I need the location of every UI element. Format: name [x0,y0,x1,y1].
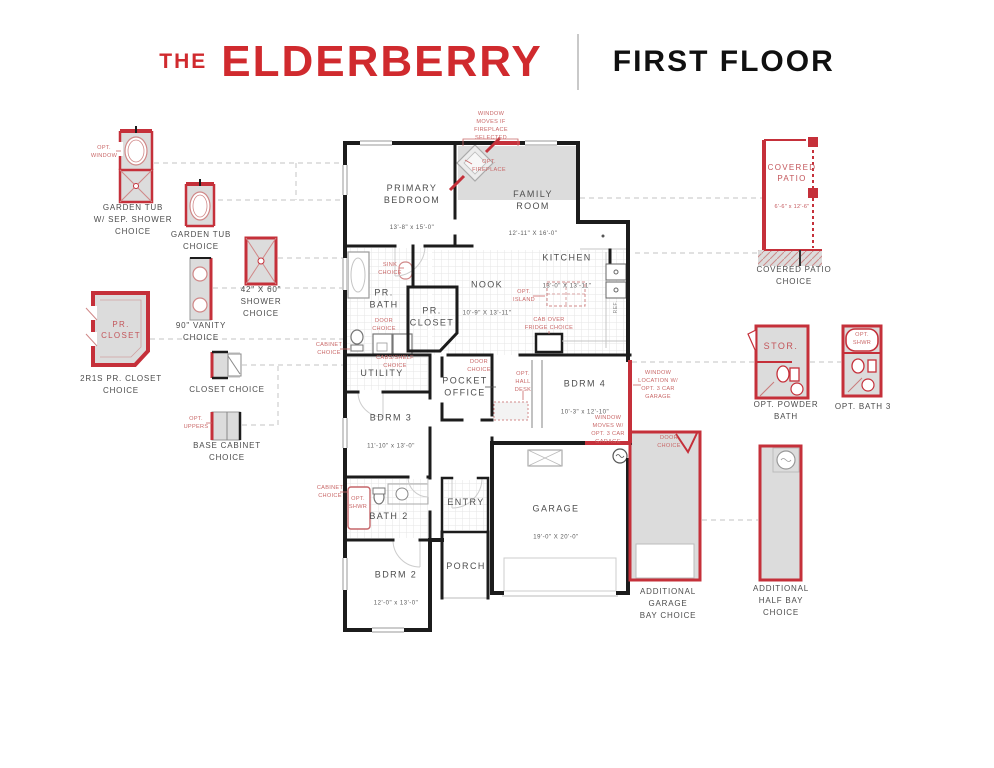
room-label-bdrm3: BDRM 3 11'-10" x 13'-0" [367,395,415,468]
room-label-bdrm2: BDRM 2 12'-0" x 13'-0" [374,552,418,625]
option-garden-tub: GARDEN TUB CHOICE [171,229,231,253]
room-label-bath2: BATH 2 [369,493,408,541]
room-label-porch: PORCH [446,543,486,591]
option-2r1s-pr-closet: 2R1S PR. CLOSET CHOICE [80,373,162,397]
note-door-choice-bath: DOOR CHOICE [372,317,396,333]
note-door-choice-office: DOOR CHOICE [467,358,491,374]
note-cab-over-fridge: CAB OVER FRIDGE CHOICE [525,316,573,332]
room-label-entry: ENTRY [447,479,484,527]
room-label-pr-closet: PR. CLOSET [410,287,454,346]
note-opt-shwr-bath3: OPT. SHWR [853,331,871,347]
note-opt-window: OPT. WINDOW [91,144,117,160]
option-additional-half-bay: ADDITIONAL HALF BAY CHOICE [753,583,809,619]
note-opt-uppers: OPT. UPPERS [184,415,209,431]
note-cabinet-choice-bath2: CABINET CHOICE [317,484,343,500]
stor-inner-label: STOR. [764,341,799,351]
floorplan-page: THE ELDERBERRY FIRST FLOOR [0,0,994,768]
room-dim: 13'-8" x 15'-0" [384,225,440,231]
note-window-moves-fireplace: WINDOW MOVES IF FIREPLACE SELECTED [474,110,508,142]
note-opt-fireplace: OPT. FIREPLACE [472,158,506,174]
option-base-cabinet: BASE CABINET CHOICE [193,440,261,464]
room-label-garage: GARAGE 19'-0" X 20'-0" [533,486,580,559]
room-name: PRIMARY BEDROOM [384,183,440,206]
note-cabinet-choice-utility: CABINET CHOICE [316,341,342,357]
pr-closet-option-inner-label: PR. CLOSET [101,319,141,341]
note-opt-island: OPT. ISLAND [513,288,535,304]
option-powder-bath: OPT. POWDER BATH [754,399,819,423]
room-label-primary-bedroom: PRIMARY BEDROOM 13'-8" x 15'-0" [384,165,440,249]
note-window-moves-garage: WINDOW MOVES W/ OPT. 3 CAR GARAGE [591,414,624,446]
room-label-kitchen: KITCHEN 13'-0" X 13'-11" [542,235,591,308]
option-closet: CLOSET CHOICE [189,384,265,396]
option-vanity-90: 90" VANITY CHOICE [176,320,226,344]
option-bath3: OPT. BATH 3 [835,401,891,413]
covered-patio-inner-label: COVERED PATIO 6'-6" x 12'-6" [768,144,817,228]
option-covered-patio: COVERED PATIO CHOICE [756,264,831,288]
option-additional-garage-bay: ADDITIONAL GARAGE BAY CHOICE [640,586,697,622]
note-window-location-garage: WINDOW LOCATION W/ OPT. 3 CAR GARAGE [638,369,678,401]
ref-label: REF. [613,301,619,314]
note-opt-shwr-bath2: OPT. SHWR [349,495,367,511]
note-opt-hall-desk: OPT. HALL DESK [515,370,531,394]
room-label-nook: NOOK 10'-9" X 13'-11" [463,262,512,335]
option-shower-42x60: 42" X 60" SHOWER CHOICE [241,284,282,320]
note-sink-choice: SINK CHOICE [378,261,402,277]
note-cabs-shelf-choice: CABS/SHELF CHOICE [376,354,414,370]
note-door-choice-garage: DOOR CHOICE [657,434,681,450]
option-garden-tub-sep-shower: GARDEN TUB W/ SEP. SHOWER CHOICE [94,202,173,238]
